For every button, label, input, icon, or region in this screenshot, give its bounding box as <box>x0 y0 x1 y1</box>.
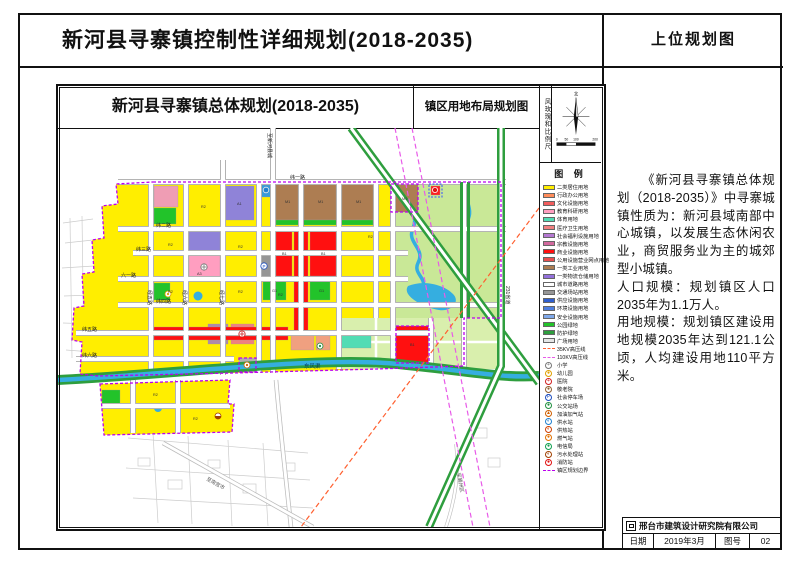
legend-icon: ▲ <box>545 410 552 417</box>
hospital-icon <box>239 331 245 337</box>
legend-label: 社会停车场 <box>557 394 583 402</box>
legend-item: 供应设施用地 <box>540 296 601 304</box>
legend-item: +医院 <box>540 377 601 385</box>
legend-swatch <box>543 282 555 287</box>
legend-item: 环境设施用地 <box>540 304 601 312</box>
legend-label: 城市道路用地 <box>557 280 588 288</box>
legend-item: 一类工业用地 <box>540 264 601 272</box>
legend-label: 公用设施营业网点用地 <box>557 256 609 264</box>
legend-item: ◐污水处理站 <box>540 450 601 458</box>
plan-sheet: 新河县寻寨镇控制性详细规划(2018-2035) 上位规划图 新河县寻寨镇总体规… <box>0 0 800 565</box>
legend-item: 体育用地 <box>540 215 601 223</box>
legend-label: 防护绿地 <box>557 329 578 337</box>
north-arrow-icon: 北 050100200 <box>552 86 599 159</box>
corner-sheet-type: 上位规划图 <box>604 13 783 66</box>
design-institute: 邢台市建筑设计研究院有限公司 <box>623 518 781 534</box>
block-code: R2 <box>278 293 283 297</box>
block-code: M1 <box>356 200 361 204</box>
legend-item: 教育科研用地 <box>540 207 601 215</box>
legend-label: 敬老院 <box>557 386 573 394</box>
block-code: R2 <box>368 235 373 239</box>
map-label: 231省道 <box>504 286 511 304</box>
block-code: M1 <box>402 197 407 201</box>
legend-swatch <box>543 241 555 246</box>
upper-plan-description: 《新河县寻寨镇总体规划（2018-2035）》中寻寨城镇性质为：新河县域南部中心… <box>617 172 775 386</box>
legend-label: 医院 <box>557 377 567 385</box>
legend-item: P社会停车场 <box>540 393 601 401</box>
legend-label: 供热站 <box>557 426 573 434</box>
legend-item: 公园绿地 <box>540 321 601 329</box>
legend-swatch <box>543 233 555 238</box>
legend-label: 一类物流仓储用地 <box>557 272 599 280</box>
sheet-info-row: 日期 2019年3月 图号 02 <box>623 534 781 549</box>
legend-label: 燃气站 <box>557 434 573 442</box>
legend-item: 防护绿地 <box>540 329 601 337</box>
date-value: 2019年3月 <box>654 534 716 549</box>
block-code: B1 <box>321 252 326 256</box>
legend-label: 小学 <box>557 361 567 369</box>
legend-item: 安全设施用地 <box>540 313 601 321</box>
block-code: A3 <box>197 272 202 276</box>
legend-swatch <box>543 274 555 279</box>
legend-swatch <box>543 330 555 335</box>
title-block: 邢台市建筑设计研究院有限公司 日期 2019年3月 图号 02 <box>622 517 782 550</box>
legend: 图 例 二类居住用地行政办公用地文化设施用地教育科研用地体育用地医疗卫生用地社会… <box>539 163 601 529</box>
legend-label: 行政办公用地 <box>557 191 588 199</box>
legend-icon: ● <box>545 434 552 441</box>
sheet-number-label: 图号 <box>716 534 750 549</box>
legend-item: 社会福利设施用地 <box>540 232 601 240</box>
legend-icon: ● <box>545 459 552 466</box>
legend-label: 商业设施用地 <box>557 248 588 256</box>
block-code: G1 <box>272 289 277 293</box>
legend-swatch <box>543 193 555 198</box>
scale-tick: 200 <box>592 138 598 142</box>
water-plant-icon <box>263 187 269 193</box>
legend-swatch <box>543 314 555 319</box>
legend-label: 公园绿地 <box>557 321 578 329</box>
scale-tick: 50 <box>565 138 569 142</box>
institute-name: 邢台市建筑设计研究院有限公司 <box>639 520 758 532</box>
sewage-plant-icon <box>215 413 221 419</box>
legend-swatch <box>543 257 555 262</box>
scale-tick: 100 <box>573 138 579 142</box>
map-sheet-frame: 新河县寻寨镇总体规划(2018-2035) 镇区用地布局规划图 风玫瑰和比例尺 … <box>56 84 606 531</box>
map-label: 东风渠 <box>304 362 321 370</box>
map-label: 经六路 <box>181 290 188 305</box>
map-label: 纬五路 <box>82 326 97 333</box>
legend-label: 电信局 <box>557 442 573 450</box>
page-title: 新河县寻寨镇控制性详细规划(2018-2035) <box>62 24 602 54</box>
legend-item: 110KV高压线 <box>540 353 601 361</box>
legend-label: 供水站 <box>557 418 573 426</box>
legend-item: 二类居住用地 <box>540 183 601 191</box>
legend-list: 二类居住用地行政办公用地文化设施用地教育科研用地体育用地医疗卫生用地社会福利设施… <box>540 183 601 474</box>
legend-item: 宗教设施用地 <box>540 240 601 248</box>
legend-item: 一类物流仓储用地 <box>540 272 601 280</box>
legend-label: 镇区规划边界 <box>557 467 588 475</box>
map-label: 经五路 <box>146 290 153 305</box>
legend-icon: ● <box>545 402 552 409</box>
legend-swatch <box>543 209 555 214</box>
map-label: 经七路 <box>218 290 225 305</box>
legend-icon: ● <box>545 370 552 377</box>
map-subtitle: 镇区用地布局规划图 <box>414 86 539 129</box>
block-code: R2 <box>153 393 158 397</box>
legend-swatch <box>543 357 555 358</box>
primary-school-icon <box>201 264 207 270</box>
legend-label: 公交站场 <box>557 402 578 410</box>
block-code: R2 <box>238 245 243 249</box>
legend-item: 公用设施营业网点用地 <box>540 256 601 264</box>
legend-label: 一类工业用地 <box>557 264 588 272</box>
institute-logo-icon <box>626 521 636 531</box>
legend-swatch <box>543 348 555 349</box>
population-paragraph: 人口规模：规划镇区人口2035年为1.1万人。 <box>617 279 775 315</box>
title-divider <box>18 66 783 68</box>
legend-label: 安全设施用地 <box>557 313 588 321</box>
legend-item: 35KV高压线 <box>540 345 601 353</box>
sheet-number-value: 02 <box>750 534 781 549</box>
legend-label: 二类居住用地 <box>557 183 588 191</box>
legend-label: 宗教设施用地 <box>557 240 588 248</box>
legend-icon: ● <box>545 386 552 393</box>
gas-station-icon <box>244 362 250 368</box>
legend-label: 广场用地 <box>557 337 578 345</box>
legend-item: 广场用地 <box>540 337 601 345</box>
legend-icon: P <box>545 394 552 401</box>
legend-swatch <box>543 249 555 254</box>
legend-item: +小学 <box>540 361 601 369</box>
legend-label: 消防站 <box>557 458 573 466</box>
planning-map: P R2R2R2R2R2R2R2R2R2M1M1M1M1B1B1B1A1A3G1… <box>58 128 539 527</box>
legend-label: 加油加气站 <box>557 410 583 418</box>
legend-swatch <box>543 290 555 295</box>
legend-item: ▲加油加气站 <box>540 410 601 418</box>
svg-text:P: P <box>262 264 265 269</box>
legend-swatch <box>543 338 555 343</box>
legend-swatch <box>543 470 555 471</box>
block-code: G1 <box>319 289 324 293</box>
block-code: M1 <box>285 200 290 204</box>
map-label: 纬三路 <box>136 246 151 253</box>
legend-icon: ◐ <box>545 426 552 433</box>
legend-item: 文化设施用地 <box>540 199 601 207</box>
legend-item: ●幼儿园 <box>540 369 601 377</box>
legend-swatch <box>543 185 555 190</box>
legend-item: ●燃气站 <box>540 434 601 442</box>
block-code: R2 <box>193 417 198 421</box>
legend-icon: + <box>545 378 552 385</box>
legend-item: ◐供水站 <box>540 418 601 426</box>
parking-icon: P <box>261 263 267 269</box>
legend-item: ●消防站 <box>540 458 601 466</box>
legend-swatch <box>543 322 555 327</box>
map-title: 新河县寻寨镇总体规划(2018-2035) <box>58 86 414 129</box>
legend-item: 城市道路用地 <box>540 280 601 288</box>
legend-label: 文化设施用地 <box>557 199 588 207</box>
legend-label: 35KV高压线 <box>557 345 585 353</box>
block-code: B1 <box>410 343 415 347</box>
date-label: 日期 <box>623 534 654 549</box>
legend-swatch <box>543 225 555 230</box>
legend-icon: ◐ <box>545 418 552 425</box>
legend-label: 环境设施用地 <box>557 305 588 313</box>
legend-label: 110KV高压线 <box>557 353 588 361</box>
block-code: R2 <box>238 290 243 294</box>
landuse-paragraph: 用地规模：规划镇区建设用地规模2035年达到121.1公顷，人均建设用地110平… <box>617 314 775 385</box>
legend-item: 行政办公用地 <box>540 191 601 199</box>
wind-rose: 北 050100200 <box>551 86 601 163</box>
legend-item: ●电信局 <box>540 442 601 450</box>
legend-icon: ● <box>545 443 552 450</box>
legend-swatch <box>543 201 555 206</box>
block-code: B1 <box>282 252 287 256</box>
legend-item: ●公交站场 <box>540 402 601 410</box>
legend-label: 体育用地 <box>557 216 578 224</box>
bus-station-icon <box>317 343 323 349</box>
legend-swatch <box>543 298 555 303</box>
map-label: 纬四路 <box>156 298 171 305</box>
fire-station-icon <box>432 187 437 192</box>
block-code: M1 <box>318 200 323 204</box>
legend-label: 幼儿园 <box>557 369 573 377</box>
map-label: 六一路 <box>121 272 136 279</box>
scale-tick: 0 <box>556 138 558 142</box>
map-label: 纬六路 <box>82 352 97 359</box>
description-paragraph: 《新河县寻寨镇总体规划（2018-2035）》中寻寨城镇性质为：新河县域南部中心… <box>617 172 775 279</box>
legend-item: 交通场站用地 <box>540 288 601 296</box>
legend-icon: ◐ <box>545 451 552 458</box>
legend-item: ◐供热站 <box>540 426 601 434</box>
block-code: R2 <box>201 205 206 209</box>
legend-label: 污水处理站 <box>557 450 583 458</box>
legend-swatch <box>543 265 555 270</box>
legend-label: 医疗卫生用地 <box>557 224 588 232</box>
legend-label: 交通场站用地 <box>557 288 588 296</box>
map-label: 纬一路 <box>290 174 305 181</box>
map-label: 至新河县城 <box>266 133 273 158</box>
legend-title: 图 例 <box>540 167 601 180</box>
legend-item: 医疗卫生用地 <box>540 223 601 231</box>
legend-label: 教育科研用地 <box>557 208 588 216</box>
legend-swatch <box>543 217 555 222</box>
legend-item: 镇区规划边界 <box>540 466 601 474</box>
block-code: A1 <box>237 202 242 206</box>
legend-label: 社会福利设施用地 <box>557 232 599 240</box>
legend-icon: + <box>545 362 552 369</box>
block-code: R2 <box>168 243 173 247</box>
scale-bar: 050100200 <box>556 138 598 142</box>
map-label: 纬二路 <box>156 222 171 229</box>
svg-text:北: 北 <box>574 91 579 98</box>
block-code: R2 <box>168 290 173 294</box>
legend-swatch <box>543 306 555 311</box>
legend-label: 供应设施用地 <box>557 297 588 305</box>
legend-item: 商业设施用地 <box>540 248 601 256</box>
